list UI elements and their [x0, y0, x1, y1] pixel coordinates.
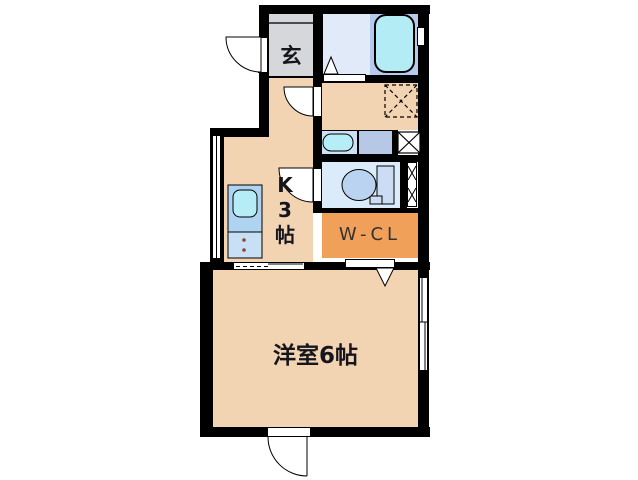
room-door-swing	[268, 437, 307, 476]
walk-in-closet-label: W-CL	[322, 224, 418, 245]
entrance-door-swing	[226, 37, 261, 72]
kitchen-label-line1: K	[263, 173, 307, 198]
toilet-icon	[342, 166, 394, 204]
pipe-shaft-icon	[398, 132, 420, 153]
bathroom-door-icon	[324, 57, 338, 74]
floorplan-image: 玄 K 3 帖 W-CL 洋室6帖	[0, 0, 638, 480]
kitchen-unit-icon	[228, 185, 262, 258]
kitchen-label: K 3 帖	[263, 173, 307, 248]
bathtub-icon	[375, 15, 414, 72]
western-room-label: 洋室6帖	[213, 336, 418, 370]
genkan-label: 玄	[269, 40, 313, 70]
kitchen-label-line2: 3	[263, 198, 307, 223]
floorplan-lineart	[0, 0, 638, 480]
washbasin-icon	[323, 134, 353, 151]
room-window-sash	[419, 278, 428, 370]
laundry-door-swing	[284, 87, 313, 116]
toilet-louver-marks	[408, 166, 416, 202]
sliding-door-marks	[236, 264, 303, 267]
kitchen-label-line3: 帖	[263, 223, 307, 248]
refrigerator-space-icon	[385, 85, 417, 117]
closet-door-icon	[376, 268, 394, 286]
